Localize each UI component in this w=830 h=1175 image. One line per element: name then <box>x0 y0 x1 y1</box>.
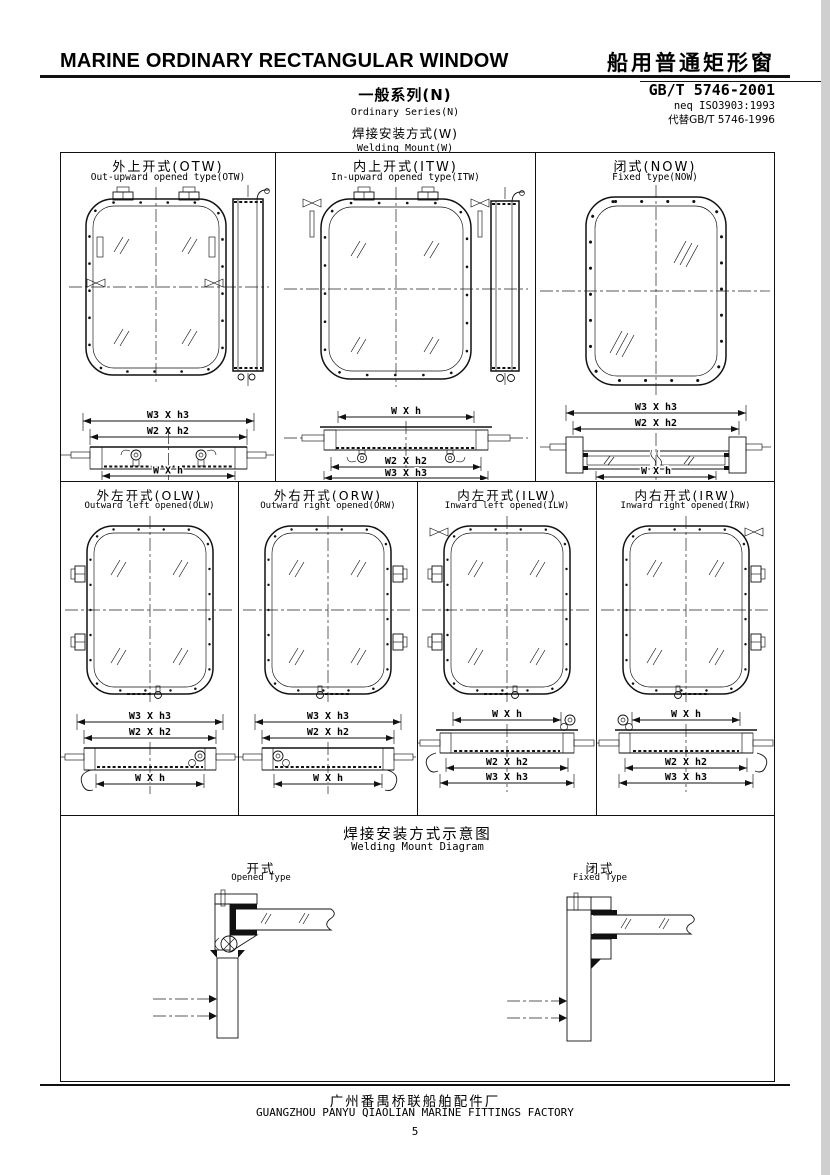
page-title: MARINE ORDINARY RECTANGULAR WINDOW <box>60 50 509 73</box>
dim-label: W X h <box>391 406 421 417</box>
row-1: 外上开式(OTW) Out-upward opened type(OTW) <box>61 153 774 482</box>
olw-section-view: W3 X h3 W2 X h2 <box>61 711 238 794</box>
dim-label: W2 X h2 <box>147 426 189 437</box>
dim-label: W2 X h2 <box>486 757 528 768</box>
itw-side-view <box>491 187 525 385</box>
hinge-icon <box>71 634 85 650</box>
dim-label: W X h <box>313 773 343 784</box>
dim-label: W3 X h3 <box>385 468 427 479</box>
catalog-page: MARINE ORDINARY RECTANGULAR WINDOW 船用普通矩… <box>0 0 830 1175</box>
hinge-icon <box>354 187 374 200</box>
hinge-icon <box>751 566 765 582</box>
hinge-icon <box>428 634 442 650</box>
panel-ilw: 内左开式(ILW) Inward left opened(ILW) <box>418 482 597 815</box>
dim-label: W2 X h2 <box>307 727 349 738</box>
panel-title-en: Outward left opened(OLW) <box>61 501 238 511</box>
dim-label: W3 X h3 <box>307 711 349 722</box>
panel-itw: 内上开式(ITW) In-upward opened type(ITW) <box>276 153 536 481</box>
mount-title-zh: 焊接安装方式(W) <box>40 123 770 142</box>
itw-drawing: W X h W2 X h2 <box>276 185 534 480</box>
orw-section-view: W3 X h3 W2 X h2 <box>239 711 416 794</box>
orw-front-view <box>243 516 413 702</box>
dim-label: W X h <box>641 466 671 477</box>
dim-label: W X h <box>671 709 701 720</box>
orw-drawing: W3 X h3 W2 X h2 <box>239 516 416 813</box>
panel-olw: 外左开式(OLW) Outward left opened(OLW) <box>61 482 239 815</box>
panel-title-en: Fixed type(NOW) <box>536 172 774 183</box>
panel-title-en: Out-upward opened type(OTW) <box>61 172 275 183</box>
dim-label: W X h <box>135 773 165 784</box>
factory-name-en: GUANGZHOU PANYU QIAOLIAN MARINE FITTINGS… <box>0 1106 830 1119</box>
panel-title-en: In-upward opened type(ITW) <box>276 172 535 183</box>
otw-side-view <box>233 185 270 387</box>
dim-label: W2 X h2 <box>635 418 677 429</box>
hinge-icon <box>71 566 85 582</box>
now-section-view: W3 X h3 W2 X h2 <box>540 402 771 480</box>
page-title-zh: 船用普通矩形窗 <box>607 47 775 77</box>
hinge-icon <box>393 634 407 650</box>
ilw-front-view <box>422 516 592 702</box>
dim-label: W X h <box>153 466 183 477</box>
scan-edge-shadow <box>821 0 830 1175</box>
hinge-icon <box>179 187 199 200</box>
now-drawing: W3 X h3 W2 X h2 <box>536 185 773 480</box>
drawing-table: 外上开式(OTW) Out-upward opened type(OTW) <box>60 152 775 1082</box>
series-title-en: Ordinary Series(N) <box>40 107 770 118</box>
page-number: 5 <box>0 1125 830 1138</box>
dim-label: W3 X h3 <box>635 402 677 413</box>
dim-label: W2 X h2 <box>385 456 427 467</box>
panel-orw: 外右开式(ORW) Outward right opened(ORW) <box>239 482 418 815</box>
welding-panel: 焊接安装方式示意图 Welding Mount Diagram 开式 Opene… <box>61 816 774 1081</box>
panel-otw: 外上开式(OTW) Out-upward opened type(OTW) <box>61 153 276 481</box>
fixed-type-section <box>507 893 694 1041</box>
row-2: 外左开式(OLW) Outward left opened(OLW) <box>61 482 774 816</box>
panel-title-en: Inward right opened(IRW) <box>597 501 774 511</box>
olw-drawing: W3 X h3 W2 X h2 <box>61 516 238 813</box>
hinge-icon <box>418 187 438 200</box>
otw-front-view <box>69 187 269 385</box>
now-front-view <box>540 185 770 395</box>
hinge-icon <box>751 634 765 650</box>
footer-rule <box>40 1084 790 1086</box>
dim-label: W2 X h2 <box>129 727 171 738</box>
hinge-icon <box>428 566 442 582</box>
hinge-icon <box>113 187 133 200</box>
row-3: 焊接安装方式示意图 Welding Mount Diagram 开式 Opene… <box>61 816 774 1081</box>
dim-label: W3 X h3 <box>486 772 528 783</box>
welding-diagram <box>61 882 773 1078</box>
dim-label: W X h <box>492 709 522 720</box>
panel-now: 闭式(NOW) Fixed type(NOW) <box>536 153 774 481</box>
dim-label: W3 X h3 <box>665 772 707 783</box>
panel-title-en: Outward right opened(ORW) <box>239 501 417 511</box>
irw-drawing: W X h W2 X h2 <box>597 516 774 813</box>
series-block: 一般系列(N) Ordinary Series(N) 焊接安装方式(W) Wel… <box>40 84 770 154</box>
dim-label: W2 X h2 <box>665 757 707 768</box>
header-rule <box>40 75 790 78</box>
series-title-zh: 一般系列(N) <box>40 84 770 105</box>
hinge-icon <box>393 566 407 582</box>
ilw-drawing: W X h W2 X h2 <box>418 516 595 813</box>
irw-front-view <box>601 516 771 702</box>
dim-label: W3 X h3 <box>129 711 171 722</box>
otw-section-view: W3 X h3 W2 X h2 <box>61 410 274 480</box>
panel-irw: 内右开式(IRW) Inward right opened(IRW) <box>597 482 774 815</box>
otw-drawing: W3 X h3 W2 X h2 <box>61 185 275 480</box>
opened-type-section <box>153 890 334 1038</box>
ilw-section-view: W X h W2 X h2 <box>418 709 594 792</box>
olw-front-view <box>65 516 235 702</box>
itw-section-view: W X h W2 X h2 <box>284 406 528 480</box>
welding-title-en: Welding Mount Diagram <box>61 841 774 853</box>
dim-label: W3 X h3 <box>147 410 189 421</box>
irw-section-view: W X h W2 X h2 <box>597 709 773 792</box>
panel-title-en: Inward left opened(ILW) <box>418 501 596 511</box>
